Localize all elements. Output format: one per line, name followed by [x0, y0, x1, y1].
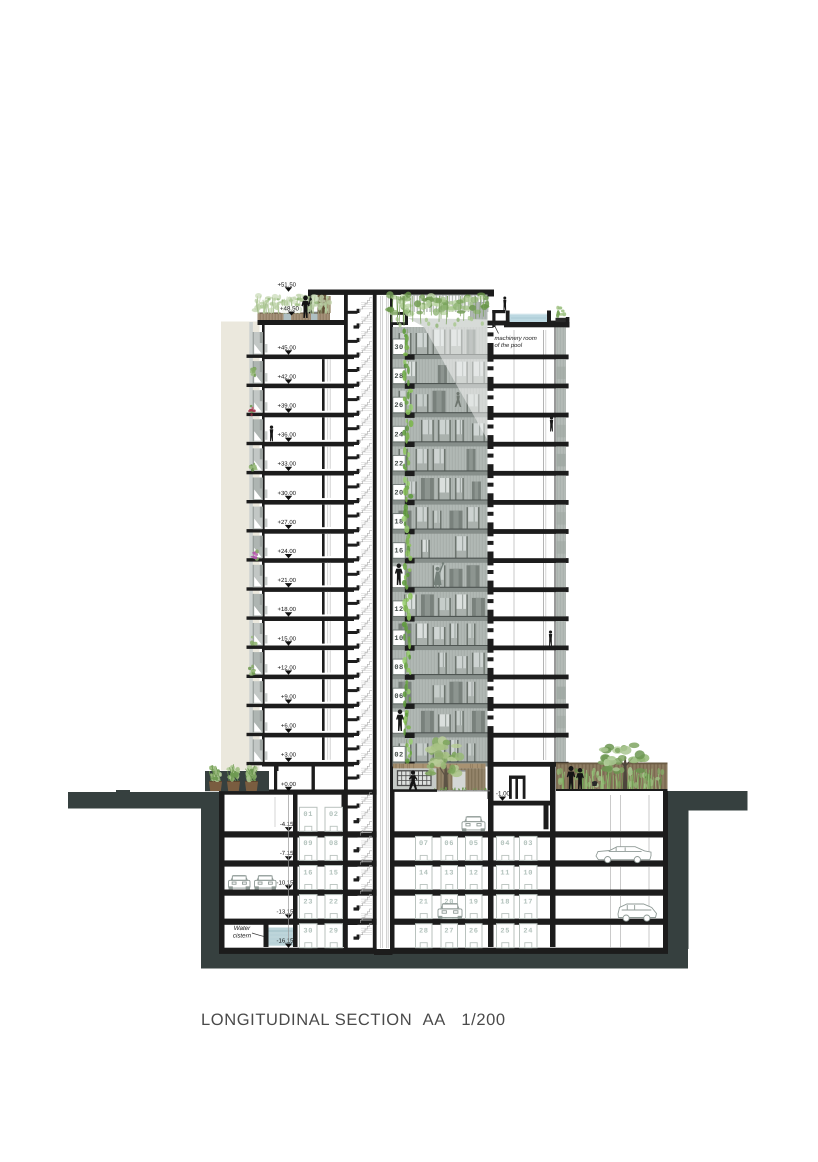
- svg-text:machinery room: machinery room: [495, 335, 537, 342]
- svg-text:+36.00: +36.00: [277, 432, 296, 439]
- svg-text:-1.00: -1.00: [496, 791, 511, 798]
- svg-text:06: 06: [444, 840, 454, 848]
- svg-text:22: 22: [329, 898, 339, 906]
- svg-text:10: 10: [394, 635, 403, 643]
- svg-text:-10.15: -10.15: [276, 879, 294, 886]
- svg-text:02: 02: [394, 751, 403, 759]
- svg-text:08: 08: [394, 664, 403, 672]
- svg-text:+21.00: +21.00: [277, 577, 296, 584]
- svg-text:+0.00: +0.00: [281, 781, 297, 788]
- svg-text:+27.00: +27.00: [277, 519, 296, 526]
- svg-text:+12.00: +12.00: [277, 664, 296, 671]
- svg-text:-13.15: -13.15: [276, 908, 294, 915]
- svg-text:20: 20: [394, 490, 403, 498]
- svg-text:16: 16: [303, 869, 313, 877]
- svg-text:17: 17: [523, 898, 533, 906]
- svg-text:cistern: cistern: [233, 933, 252, 940]
- svg-text:11: 11: [500, 869, 510, 877]
- svg-text:26: 26: [469, 928, 479, 936]
- svg-text:+3.00: +3.00: [281, 752, 297, 759]
- svg-text:28: 28: [419, 928, 429, 936]
- svg-text:21: 21: [419, 898, 429, 906]
- svg-text:+39.00: +39.00: [277, 403, 296, 410]
- svg-text:+33.00: +33.00: [277, 461, 296, 468]
- svg-text:25: 25: [500, 928, 510, 936]
- svg-text:16: 16: [394, 548, 403, 556]
- svg-text:23: 23: [303, 898, 313, 906]
- svg-text:LONGITUDINAL SECTION AA 1/2: LONGITUDINAL SECTION AA 1/200: [201, 1011, 506, 1029]
- svg-text:30: 30: [303, 928, 313, 936]
- svg-text:-4.15: -4.15: [280, 821, 294, 828]
- svg-text:05: 05: [469, 840, 479, 848]
- svg-text:04: 04: [500, 840, 510, 848]
- svg-text:06: 06: [394, 693, 403, 701]
- svg-text:-16.15: -16.15: [276, 938, 294, 945]
- svg-text:29: 29: [329, 928, 339, 936]
- svg-text:07: 07: [419, 840, 429, 848]
- svg-text:+45.00: +45.00: [277, 344, 296, 351]
- svg-text:12: 12: [394, 606, 403, 614]
- svg-text:03: 03: [523, 840, 533, 848]
- svg-text:15: 15: [329, 869, 339, 877]
- svg-text:of the pool: of the pool: [495, 342, 523, 349]
- svg-text:19: 19: [469, 898, 479, 906]
- svg-text:30: 30: [394, 344, 403, 352]
- svg-text:+24.00: +24.00: [277, 548, 296, 555]
- svg-text:24: 24: [523, 928, 533, 936]
- svg-text:27: 27: [444, 928, 454, 936]
- svg-text:12: 12: [469, 869, 479, 877]
- svg-text:14: 14: [419, 869, 429, 877]
- svg-text:+30.00: +30.00: [277, 490, 296, 497]
- svg-text:+18.00: +18.00: [277, 606, 296, 613]
- svg-text:+48.50: +48.50: [280, 306, 300, 313]
- svg-text:10: 10: [523, 869, 533, 877]
- svg-text:+51.50: +51.50: [277, 281, 296, 288]
- svg-text:+6.00: +6.00: [281, 723, 297, 730]
- svg-text:+42.00: +42.00: [277, 373, 296, 380]
- svg-text:08: 08: [329, 840, 339, 848]
- svg-text:Water: Water: [234, 925, 251, 932]
- svg-text:22: 22: [394, 460, 403, 468]
- svg-text:13: 13: [444, 869, 454, 877]
- svg-text:01: 01: [303, 811, 313, 819]
- svg-text:18: 18: [500, 898, 510, 906]
- svg-text:-7.15: -7.15: [280, 850, 294, 857]
- svg-text:09: 09: [303, 840, 313, 848]
- svg-text:+9.00: +9.00: [281, 694, 297, 701]
- svg-text:02: 02: [329, 811, 339, 819]
- svg-text:26: 26: [394, 402, 403, 410]
- svg-text:+15.00: +15.00: [277, 635, 296, 642]
